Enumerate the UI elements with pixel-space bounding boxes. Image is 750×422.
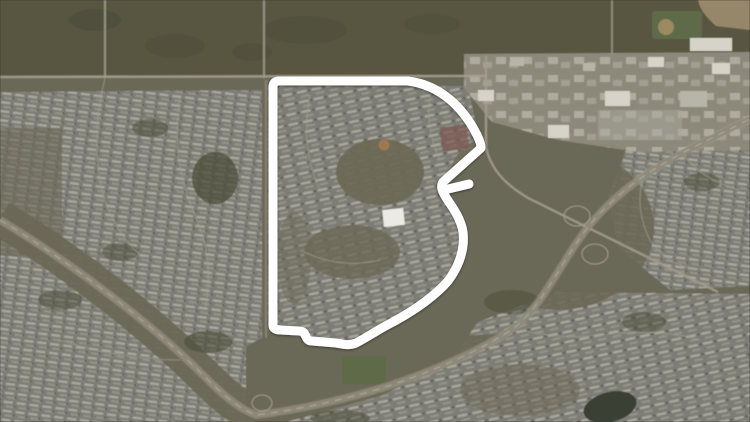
map-viewport [0,0,750,422]
central-park [336,139,424,205]
southeast-open [460,364,580,416]
tree-patch [38,290,82,310]
tree-patch [684,173,720,191]
tree-patch [622,312,666,332]
industrial-building [690,38,732,51]
tree-patch [69,9,121,31]
parking-lot [598,110,682,140]
tree-patch [263,16,347,44]
baseball-infield [658,19,674,35]
sports-field [342,356,386,384]
tree-patch [404,14,460,34]
satellite-map [0,0,750,422]
main-avenue [0,76,486,77]
park-diamond-dot [379,140,390,151]
industrial-building [583,63,595,71]
industrial-building [548,125,569,138]
red-roof-block [439,124,469,152]
tree-patch [102,243,138,261]
wooded-park [192,152,238,204]
tree-patch [232,43,272,61]
tree-patch [132,119,168,137]
school-building [382,208,405,227]
central-park-south [304,225,400,279]
inner-west-strip [277,212,311,304]
industrial-building [648,57,664,67]
industrial-building [510,57,524,66]
industrial-building [478,90,494,101]
tree-patch [184,331,232,353]
tree-patch [145,34,205,58]
route-spur [444,184,469,190]
map-imagery [0,0,750,422]
industrial-building [680,91,707,107]
industrial-building [712,63,730,74]
industrial-building [605,91,630,106]
